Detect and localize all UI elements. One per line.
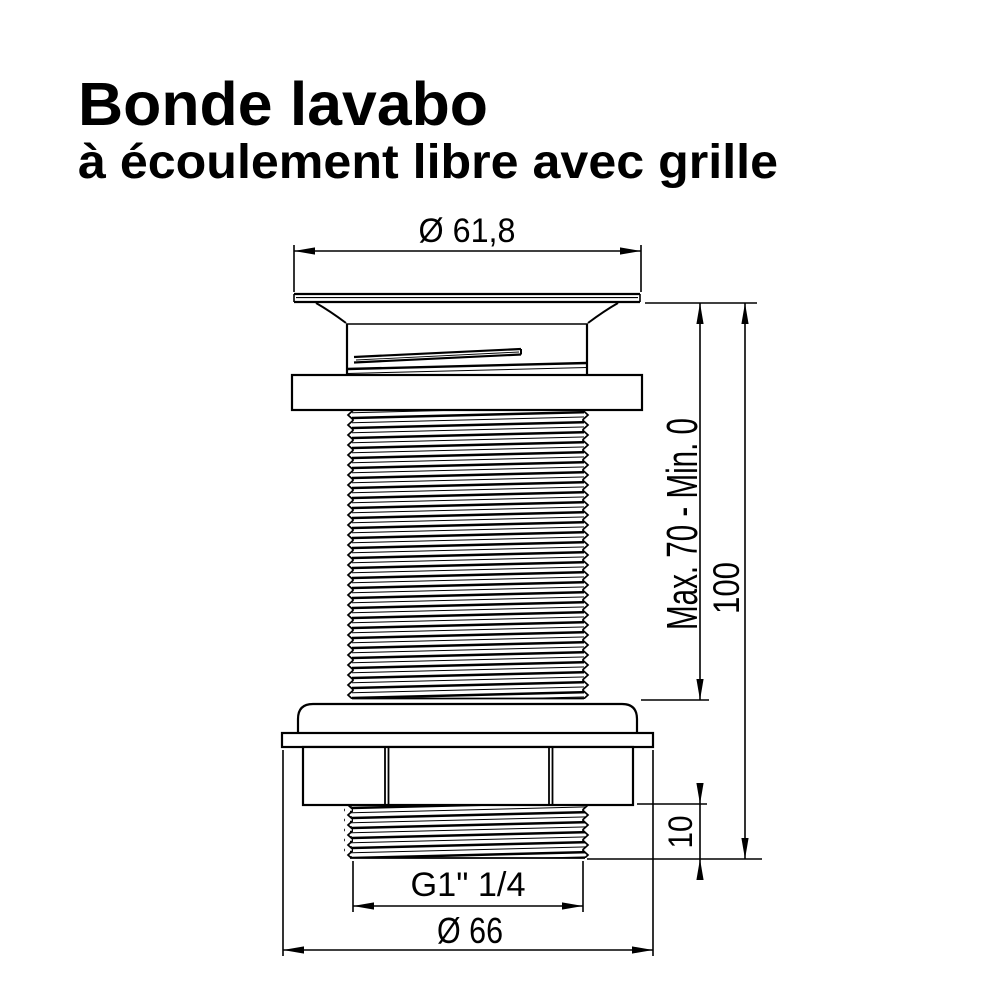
arrow-up-icon: [696, 303, 703, 324]
arrow-up-icon: [696, 859, 703, 880]
bottom-flange: [282, 733, 653, 747]
main-thread: [346, 410, 591, 699]
header: Bonde lavabo à écoulement libre avec gri…: [78, 70, 778, 189]
arrow-right-icon: [620, 247, 641, 254]
dim-exposed-thread-label: 10: [662, 816, 700, 849]
dim-thread-size-label: G1" 1/4: [411, 866, 526, 904]
dim-top-diameter: Ø 61,8: [294, 212, 641, 292]
sealing-washer: [292, 375, 642, 410]
arrow-right-icon: [632, 946, 653, 953]
dim-exposed-thread: 10: [662, 783, 704, 880]
page-subtitle: à écoulement libre avec grille: [78, 136, 778, 189]
dim-clamping-range-label: Max. 70 - Min. 0: [658, 418, 707, 630]
dim-clamping-range: Max. 70 - Min. 0: [658, 303, 707, 700]
technical-drawing-canvas: Bonde lavabo à écoulement libre avec gri…: [0, 0, 1000, 1000]
arrow-right-icon: [562, 902, 583, 909]
arrow-down-icon: [741, 838, 748, 859]
arrow-up-icon: [741, 303, 748, 324]
dim-bottom-diameter: Ø 66: [283, 910, 653, 954]
arrow-left-icon: [283, 946, 304, 953]
dim-bottom-diameter-label: Ø 66: [437, 910, 503, 951]
arrow-down-icon: [696, 679, 703, 700]
dim-total-height: 100: [706, 303, 749, 859]
lower-thread: [344, 805, 591, 858]
arrow-left-icon: [353, 902, 374, 909]
bottom-cap: [298, 704, 637, 733]
top-flange: [294, 294, 640, 302]
upper-thread-runout: [347, 349, 587, 374]
diagram-page: Bonde lavabo à écoulement libre avec gri…: [0, 0, 1000, 1000]
page-title: Bonde lavabo: [78, 70, 488, 138]
dim-total-height-label: 100: [706, 562, 747, 614]
drain-body-drawing: [282, 294, 653, 858]
arrow-down-icon: [696, 783, 703, 804]
dim-top-diameter-label: Ø 61,8: [419, 212, 516, 250]
arrow-left-icon: [294, 247, 315, 254]
locking-nut: [303, 747, 633, 805]
dim-thread-size: G1" 1/4: [353, 866, 583, 910]
